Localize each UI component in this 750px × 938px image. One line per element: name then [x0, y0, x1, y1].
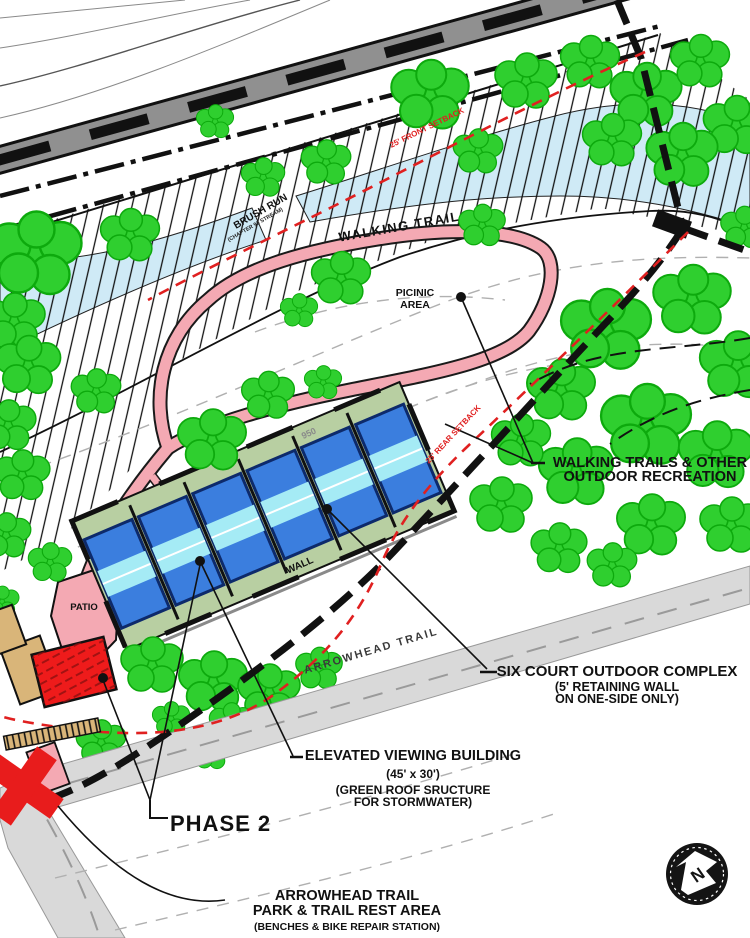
phase-2-label: PHASE 2: [170, 811, 271, 836]
elevated-building-callout-line2: (45' x 30'): [386, 767, 440, 781]
rest-area-callout-line2: PARK & TRAIL REST AREA: [253, 903, 442, 919]
picnic-area-label-line2: AREA: [400, 299, 430, 311]
rest-area-callout-line1: ARROWHEAD TRAIL: [275, 888, 419, 904]
rest-area-callout-line3: (BENCHES & BIKE REPAIR STATION): [254, 921, 440, 933]
elevated-building-callout-line1: ELEVATED VIEWING BUILDING: [305, 748, 521, 764]
patio-label: PATIO: [70, 602, 98, 613]
six-court-callout-line1: SIX COURT OUTDOOR COMPLEX: [497, 663, 738, 680]
north-arrow-icon: N: [666, 843, 728, 905]
six-court-callout-line3: ON ONE-SIDE ONLY): [555, 692, 679, 706]
elevated-building-callout-line4: FOR STORMWATER): [354, 795, 472, 809]
site-plan: WALKING TRAIL BRUSH RUN (CHAPTER 93 STRE…: [0, 0, 750, 938]
site-plan-drawing: WALKING TRAIL BRUSH RUN (CHAPTER 93 STRE…: [0, 0, 750, 938]
picnic-area-label-line1: PICINIC: [396, 287, 435, 299]
walking-trails-callout-line2: OUTDOOR RECREATION: [564, 469, 737, 485]
